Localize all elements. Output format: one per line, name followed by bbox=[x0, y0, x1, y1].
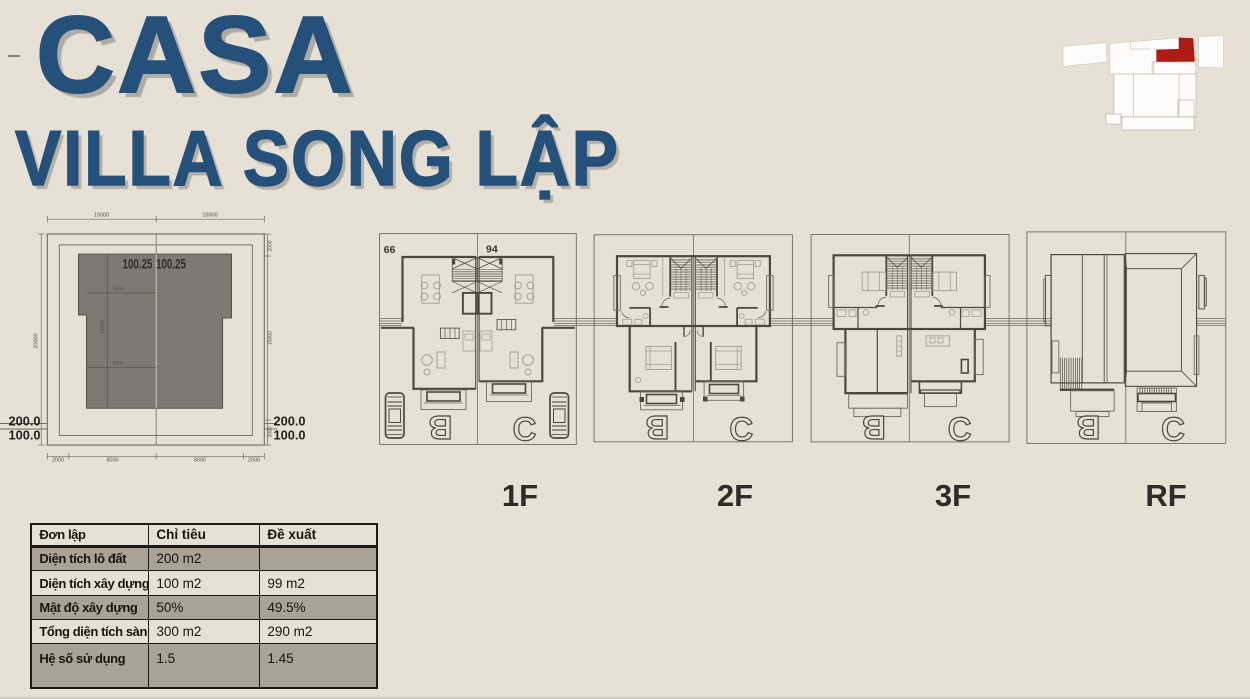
svg-text:B: B bbox=[862, 409, 886, 446]
svg-text:100.0: 100.0 bbox=[274, 428, 306, 443]
svg-text:100.25: 100.25 bbox=[123, 257, 153, 272]
svg-text:C: C bbox=[729, 411, 753, 448]
svg-text:C: C bbox=[513, 411, 537, 448]
svg-text:2000: 2000 bbox=[52, 458, 64, 464]
svg-text:C: C bbox=[1161, 411, 1185, 448]
svg-text:10000: 10000 bbox=[94, 213, 109, 219]
svg-text:B: B bbox=[645, 409, 669, 446]
svg-text:99: 99 bbox=[384, 243, 396, 255]
svg-text:14500: 14500 bbox=[100, 320, 106, 334]
svg-text:2000: 2000 bbox=[248, 458, 260, 464]
svg-text:94: 94 bbox=[486, 244, 498, 256]
svg-text:10000: 10000 bbox=[202, 213, 217, 219]
svg-text:8000: 8000 bbox=[106, 458, 118, 464]
svg-text:200.0: 200.0 bbox=[274, 414, 306, 429]
svg-text:B: B bbox=[429, 409, 453, 446]
svg-text:15000: 15000 bbox=[268, 331, 274, 345]
svg-text:8000: 8000 bbox=[194, 458, 206, 464]
svg-text:100.25: 100.25 bbox=[156, 257, 186, 272]
svg-text:7500: 7500 bbox=[112, 287, 123, 293]
svg-text:100.0: 100.0 bbox=[8, 428, 40, 443]
svg-text:2000: 2000 bbox=[268, 240, 274, 251]
svg-text:6500: 6500 bbox=[112, 361, 123, 367]
svg-text:20000: 20000 bbox=[34, 333, 40, 348]
svg-text:B: B bbox=[1076, 409, 1100, 446]
svg-text:200.0: 200.0 bbox=[8, 414, 40, 429]
svg-text:C: C bbox=[948, 411, 972, 448]
